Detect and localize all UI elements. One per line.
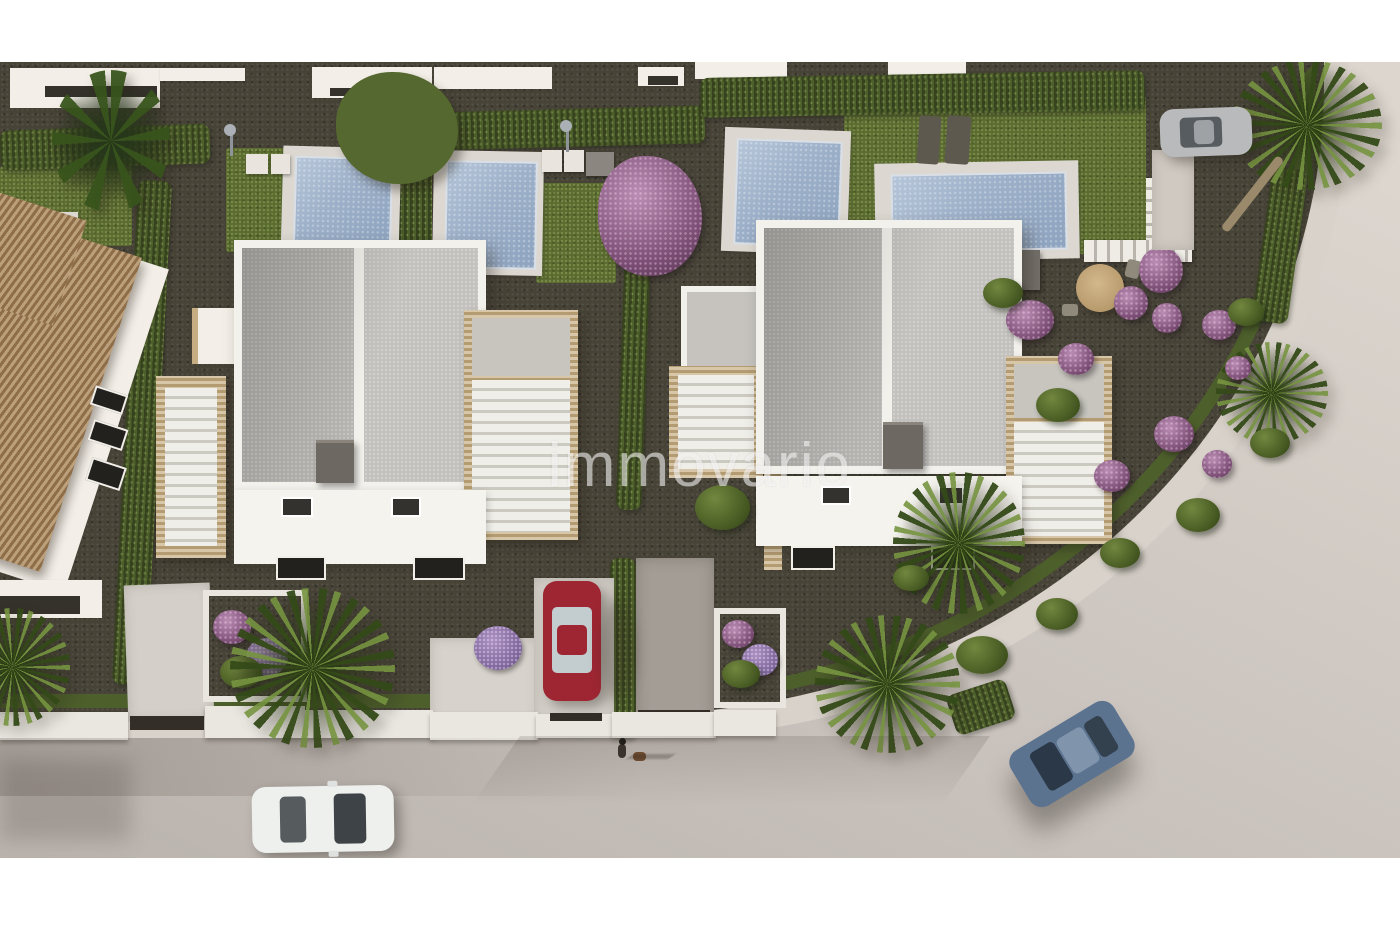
- left-villa-window: [413, 556, 465, 580]
- silver-car-roof: [1194, 120, 1215, 145]
- shrub: [1036, 388, 1080, 422]
- bottom-margin-band: [0, 858, 1400, 929]
- neighbour-building: [434, 67, 552, 89]
- pedestrian: [618, 744, 626, 758]
- entrance-gate: [130, 716, 204, 730]
- shrub: [1176, 498, 1220, 532]
- dog: [633, 752, 646, 761]
- pedestrian-head: [619, 738, 626, 745]
- driveway-gate: [550, 713, 602, 721]
- aerial-render-canvas: immovario: [0, 0, 1400, 929]
- sun-lounger: [944, 115, 971, 165]
- flower-bush-purple: [1202, 450, 1232, 478]
- red-car-shadow: [600, 600, 636, 700]
- left-villa-roof-panel: [364, 248, 478, 482]
- white-car-windshield: [334, 793, 367, 844]
- sun-mat: [542, 150, 562, 172]
- shower-head: [224, 124, 236, 136]
- right-villa-window: [791, 546, 835, 570]
- flower-bush-purple: [1006, 300, 1054, 340]
- shrub: [1228, 298, 1264, 326]
- flower-bush-purple: [1058, 343, 1094, 375]
- sun-lounger: [916, 115, 941, 164]
- shrub: [983, 278, 1023, 308]
- left-villa-terrace-east-deck: [472, 318, 570, 376]
- shrub: [722, 660, 760, 688]
- watermark: immovario: [548, 430, 852, 501]
- silver-car: [1159, 106, 1253, 157]
- white-car-mirror: [327, 781, 337, 787]
- boundary-wall: [714, 710, 776, 736]
- banana-tree: [52, 70, 170, 212]
- palm-tree: [893, 472, 1025, 614]
- boundary-wall: [612, 712, 716, 738]
- palm-tree: [815, 615, 960, 753]
- lawn: [1080, 96, 1146, 252]
- left-villa-chimney: [316, 440, 354, 483]
- silver-car-driveway: [1152, 150, 1194, 250]
- flower-bush-purple: [1094, 460, 1130, 492]
- right-villa-terrace-east-louvers: [1014, 422, 1104, 536]
- left-villa-facade: [234, 490, 486, 564]
- flower-bush-purple: [1152, 303, 1182, 333]
- white-car: [251, 785, 394, 853]
- left-villa-window: [276, 556, 326, 580]
- shrub: [1036, 598, 1078, 630]
- shower-head: [560, 120, 572, 132]
- shrub: [1250, 428, 1290, 458]
- cypress-hedge: [700, 70, 1146, 118]
- driveway: [124, 583, 215, 722]
- flower-bush-purple: [722, 620, 754, 648]
- palm-tree: [1232, 60, 1382, 190]
- shrub: [1100, 538, 1140, 568]
- white-car-rear-window: [280, 796, 307, 842]
- flower-bush-purple: [1139, 247, 1183, 293]
- red-car-roof: [557, 625, 587, 655]
- left-villa-terrace-west-louvers: [165, 388, 217, 546]
- right-villa-chimney: [883, 422, 923, 469]
- flower-bush-purple: [1114, 286, 1148, 320]
- flower-bush-purple: [1154, 416, 1194, 452]
- white-car-mirror: [329, 851, 339, 857]
- red-car: [543, 581, 601, 701]
- palm-tree: [230, 588, 395, 748]
- flower-bush-purple: [1225, 356, 1251, 380]
- bougainvillea: [598, 156, 702, 276]
- neighbour-building: [160, 68, 245, 81]
- shrub: [893, 565, 929, 591]
- garden-chair: [1062, 304, 1078, 316]
- sun-mat: [246, 154, 268, 174]
- left-villa-skylight: [281, 497, 313, 517]
- top-margin-band: [0, 0, 1400, 62]
- sun-mat: [564, 150, 584, 172]
- sun-mat: [271, 154, 290, 174]
- flower-bush-lavender: [474, 626, 522, 670]
- boundary-wall: [430, 712, 538, 740]
- left-villa-skylight: [391, 497, 421, 517]
- left-villa-roof: [234, 240, 486, 490]
- neighbour-window-band: [648, 76, 678, 85]
- shrub: [956, 636, 1008, 674]
